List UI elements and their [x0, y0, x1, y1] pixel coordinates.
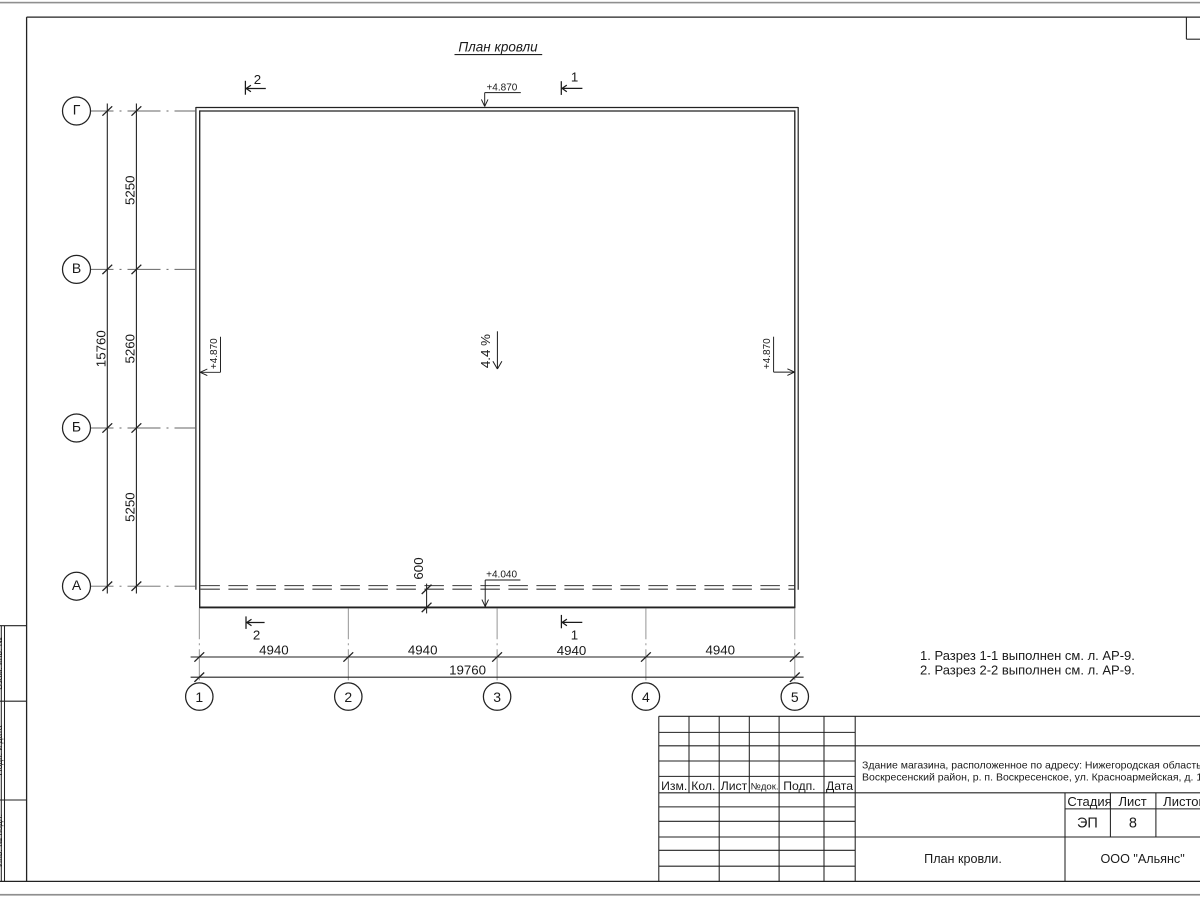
- svg-text:Здание магазина, расположенное: Здание магазина, расположенное по адресу…: [862, 759, 1200, 771]
- svg-text:Кол.: Кол.: [691, 779, 715, 793]
- svg-text:5250: 5250: [123, 492, 138, 522]
- svg-text:3: 3: [493, 689, 501, 705]
- svg-text:1: 1: [571, 627, 578, 642]
- svg-text:Взам. инв. №: Взам. инв. №: [0, 637, 4, 690]
- svg-text:8: 8: [1129, 815, 1137, 831]
- svg-text:Листов: Листов: [1163, 794, 1200, 809]
- svg-text:Лист: Лист: [721, 779, 748, 793]
- svg-text:4: 4: [642, 689, 650, 705]
- svg-text:5250: 5250: [123, 175, 138, 205]
- svg-text:4940: 4940: [259, 643, 289, 658]
- svg-text:5260: 5260: [123, 334, 138, 364]
- svg-text:2. Разрез 2-2 выполнен см. л.: 2. Разрез 2-2 выполнен см. л. АР-9.: [920, 663, 1135, 678]
- svg-text:1: 1: [195, 689, 203, 705]
- svg-text:Дата: Дата: [826, 779, 853, 793]
- svg-text:+4.870: +4.870: [486, 83, 517, 94]
- svg-text:15760: 15760: [94, 330, 109, 367]
- svg-text:Б: Б: [72, 419, 81, 435]
- svg-text:План кровли: План кровли: [458, 39, 538, 54]
- svg-text:Воскресенский район, р. п. Вос: Воскресенский район, р. п. Воскресенское…: [862, 772, 1200, 784]
- svg-text:+4.040: +4.040: [486, 570, 517, 581]
- svg-text:№док.: №док.: [751, 781, 779, 792]
- svg-text:2: 2: [253, 627, 260, 642]
- svg-text:План кровли.: План кровли.: [924, 852, 1002, 866]
- svg-text:Стадия: Стадия: [1067, 794, 1111, 809]
- svg-text:2: 2: [344, 689, 352, 705]
- svg-text:1. Разрез 1-1 выполнен см. л.: 1. Разрез 1-1 выполнен см. л. АР-9.: [920, 648, 1135, 663]
- svg-text:19760: 19760: [449, 662, 486, 677]
- svg-text:+4.870: +4.870: [209, 338, 220, 369]
- svg-text:Изм.: Изм.: [661, 779, 687, 793]
- svg-text:+4.870: +4.870: [762, 338, 773, 369]
- svg-text:Г: Г: [73, 102, 81, 118]
- svg-text:А: А: [72, 577, 82, 593]
- svg-text:2: 2: [254, 72, 261, 87]
- svg-text:ООО "Альянс": ООО "Альянс": [1100, 852, 1184, 866]
- svg-text:Лист: Лист: [1118, 794, 1146, 809]
- svg-text:1: 1: [571, 70, 578, 85]
- svg-text:ЭП: ЭП: [1077, 815, 1098, 831]
- svg-text:5: 5: [791, 689, 799, 705]
- svg-text:Инв. № подл.: Инв. № подл.: [0, 814, 4, 867]
- svg-text:4940: 4940: [408, 643, 438, 658]
- svg-text:4940: 4940: [557, 643, 587, 658]
- svg-text:Подп.: Подп.: [783, 779, 815, 793]
- svg-text:4.4 %: 4.4 %: [478, 334, 493, 368]
- svg-text:В: В: [72, 260, 81, 276]
- svg-text:4940: 4940: [706, 643, 736, 658]
- svg-text:600: 600: [411, 557, 426, 579]
- svg-text:Подп. и дата: Подп. и дата: [0, 725, 4, 775]
